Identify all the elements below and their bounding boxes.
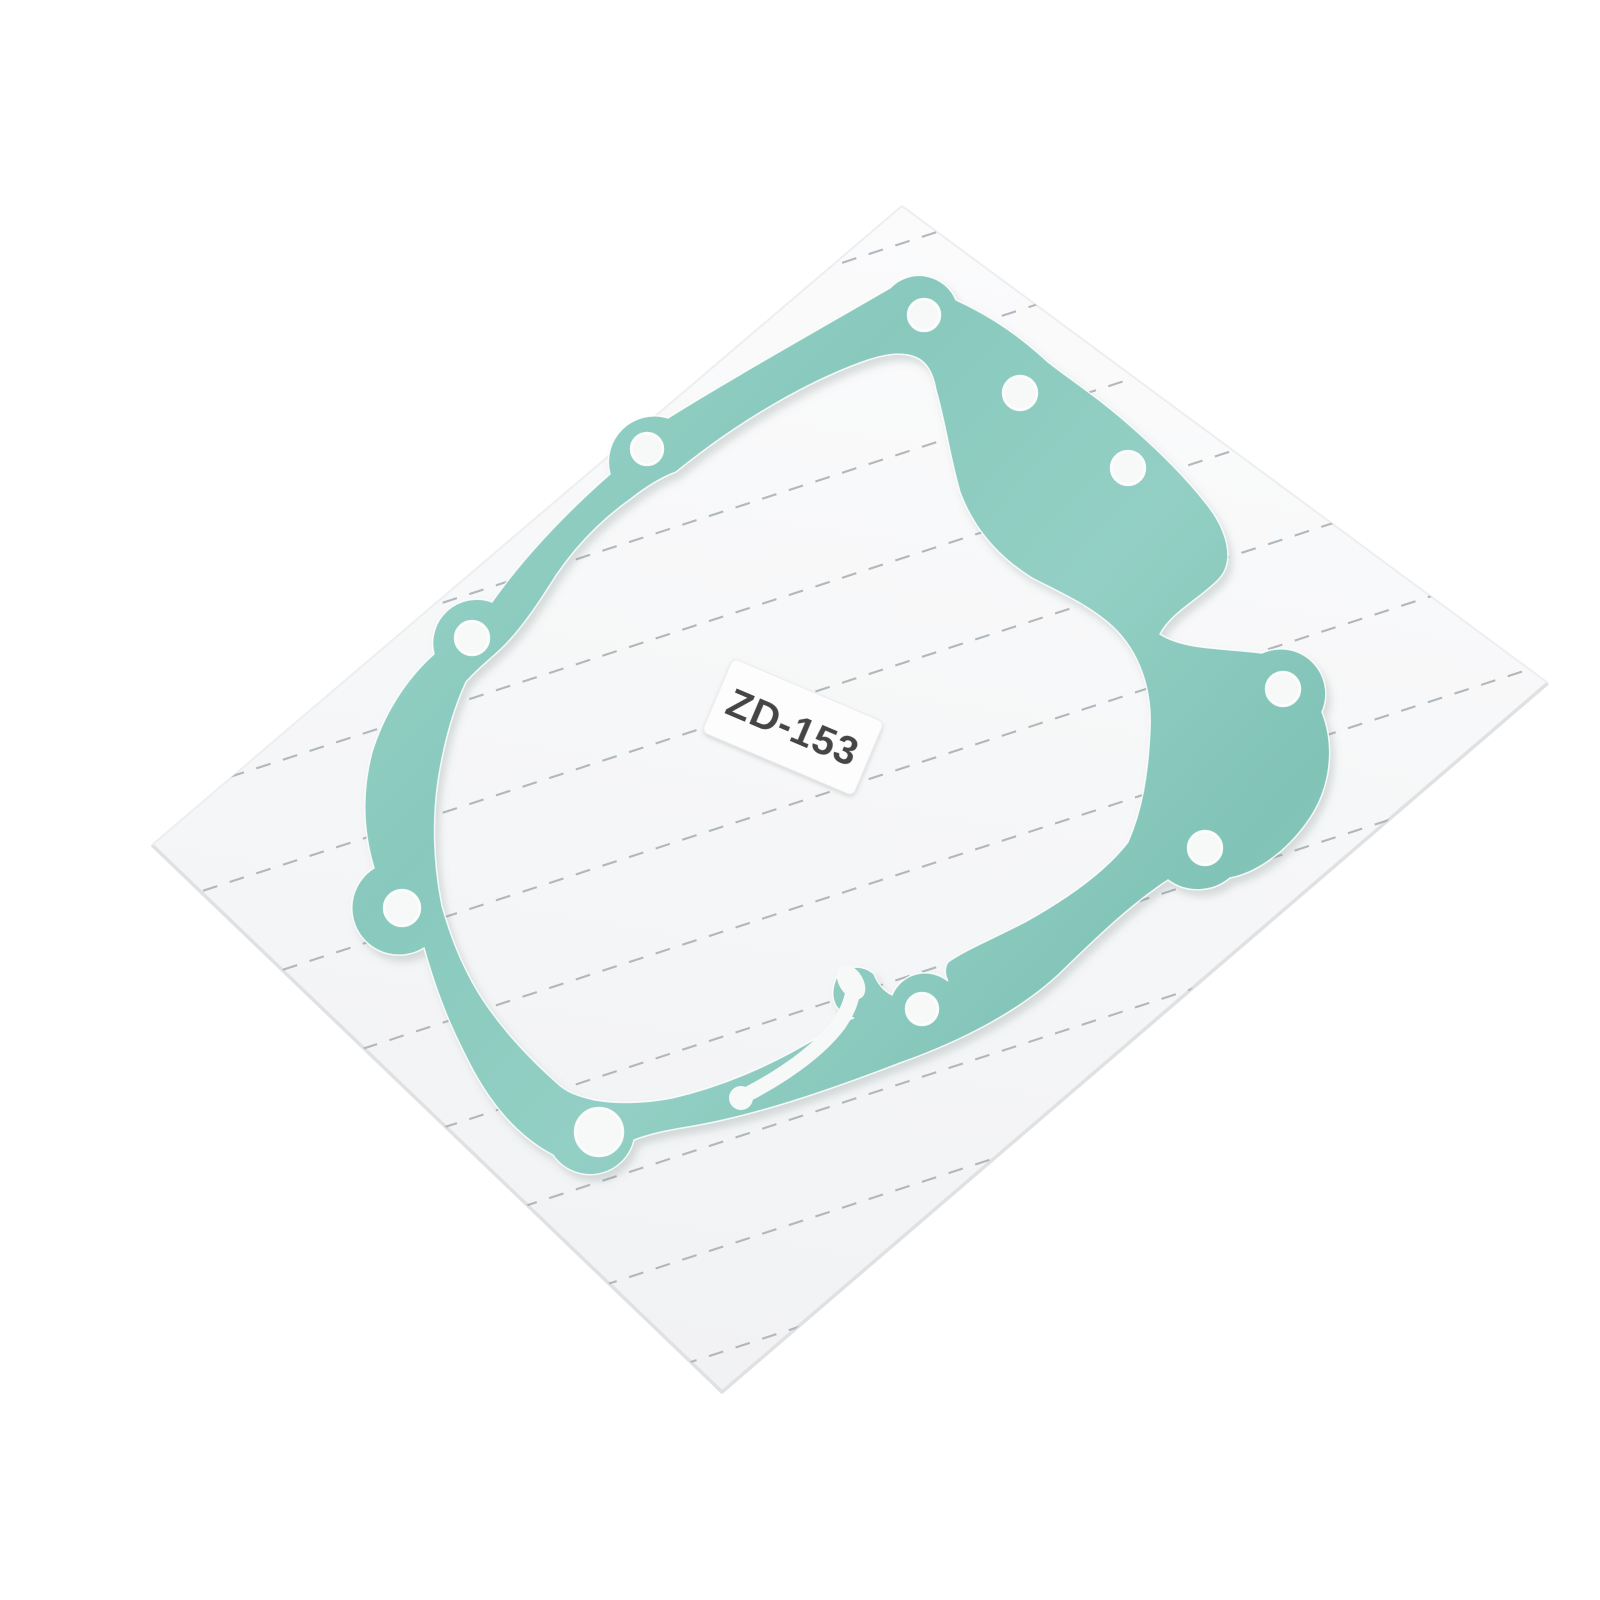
bolt-hole: [1266, 672, 1300, 706]
bolt-hole: [908, 299, 940, 331]
bolt-hole: [1003, 376, 1037, 410]
bolt-hole: [631, 433, 663, 465]
gasket-product-scene: ZD-153: [0, 0, 1600, 1600]
bolt-hole: [455, 621, 489, 655]
bolt-hole: [575, 1108, 623, 1156]
bolt-hole: [1188, 831, 1222, 865]
bolt-hole: [1111, 451, 1145, 485]
product-photo: ZD-153: [0, 0, 1600, 1600]
slot-cutout-end: [729, 1086, 753, 1110]
bolt-hole: [384, 890, 420, 926]
bolt-hole: [906, 993, 938, 1025]
